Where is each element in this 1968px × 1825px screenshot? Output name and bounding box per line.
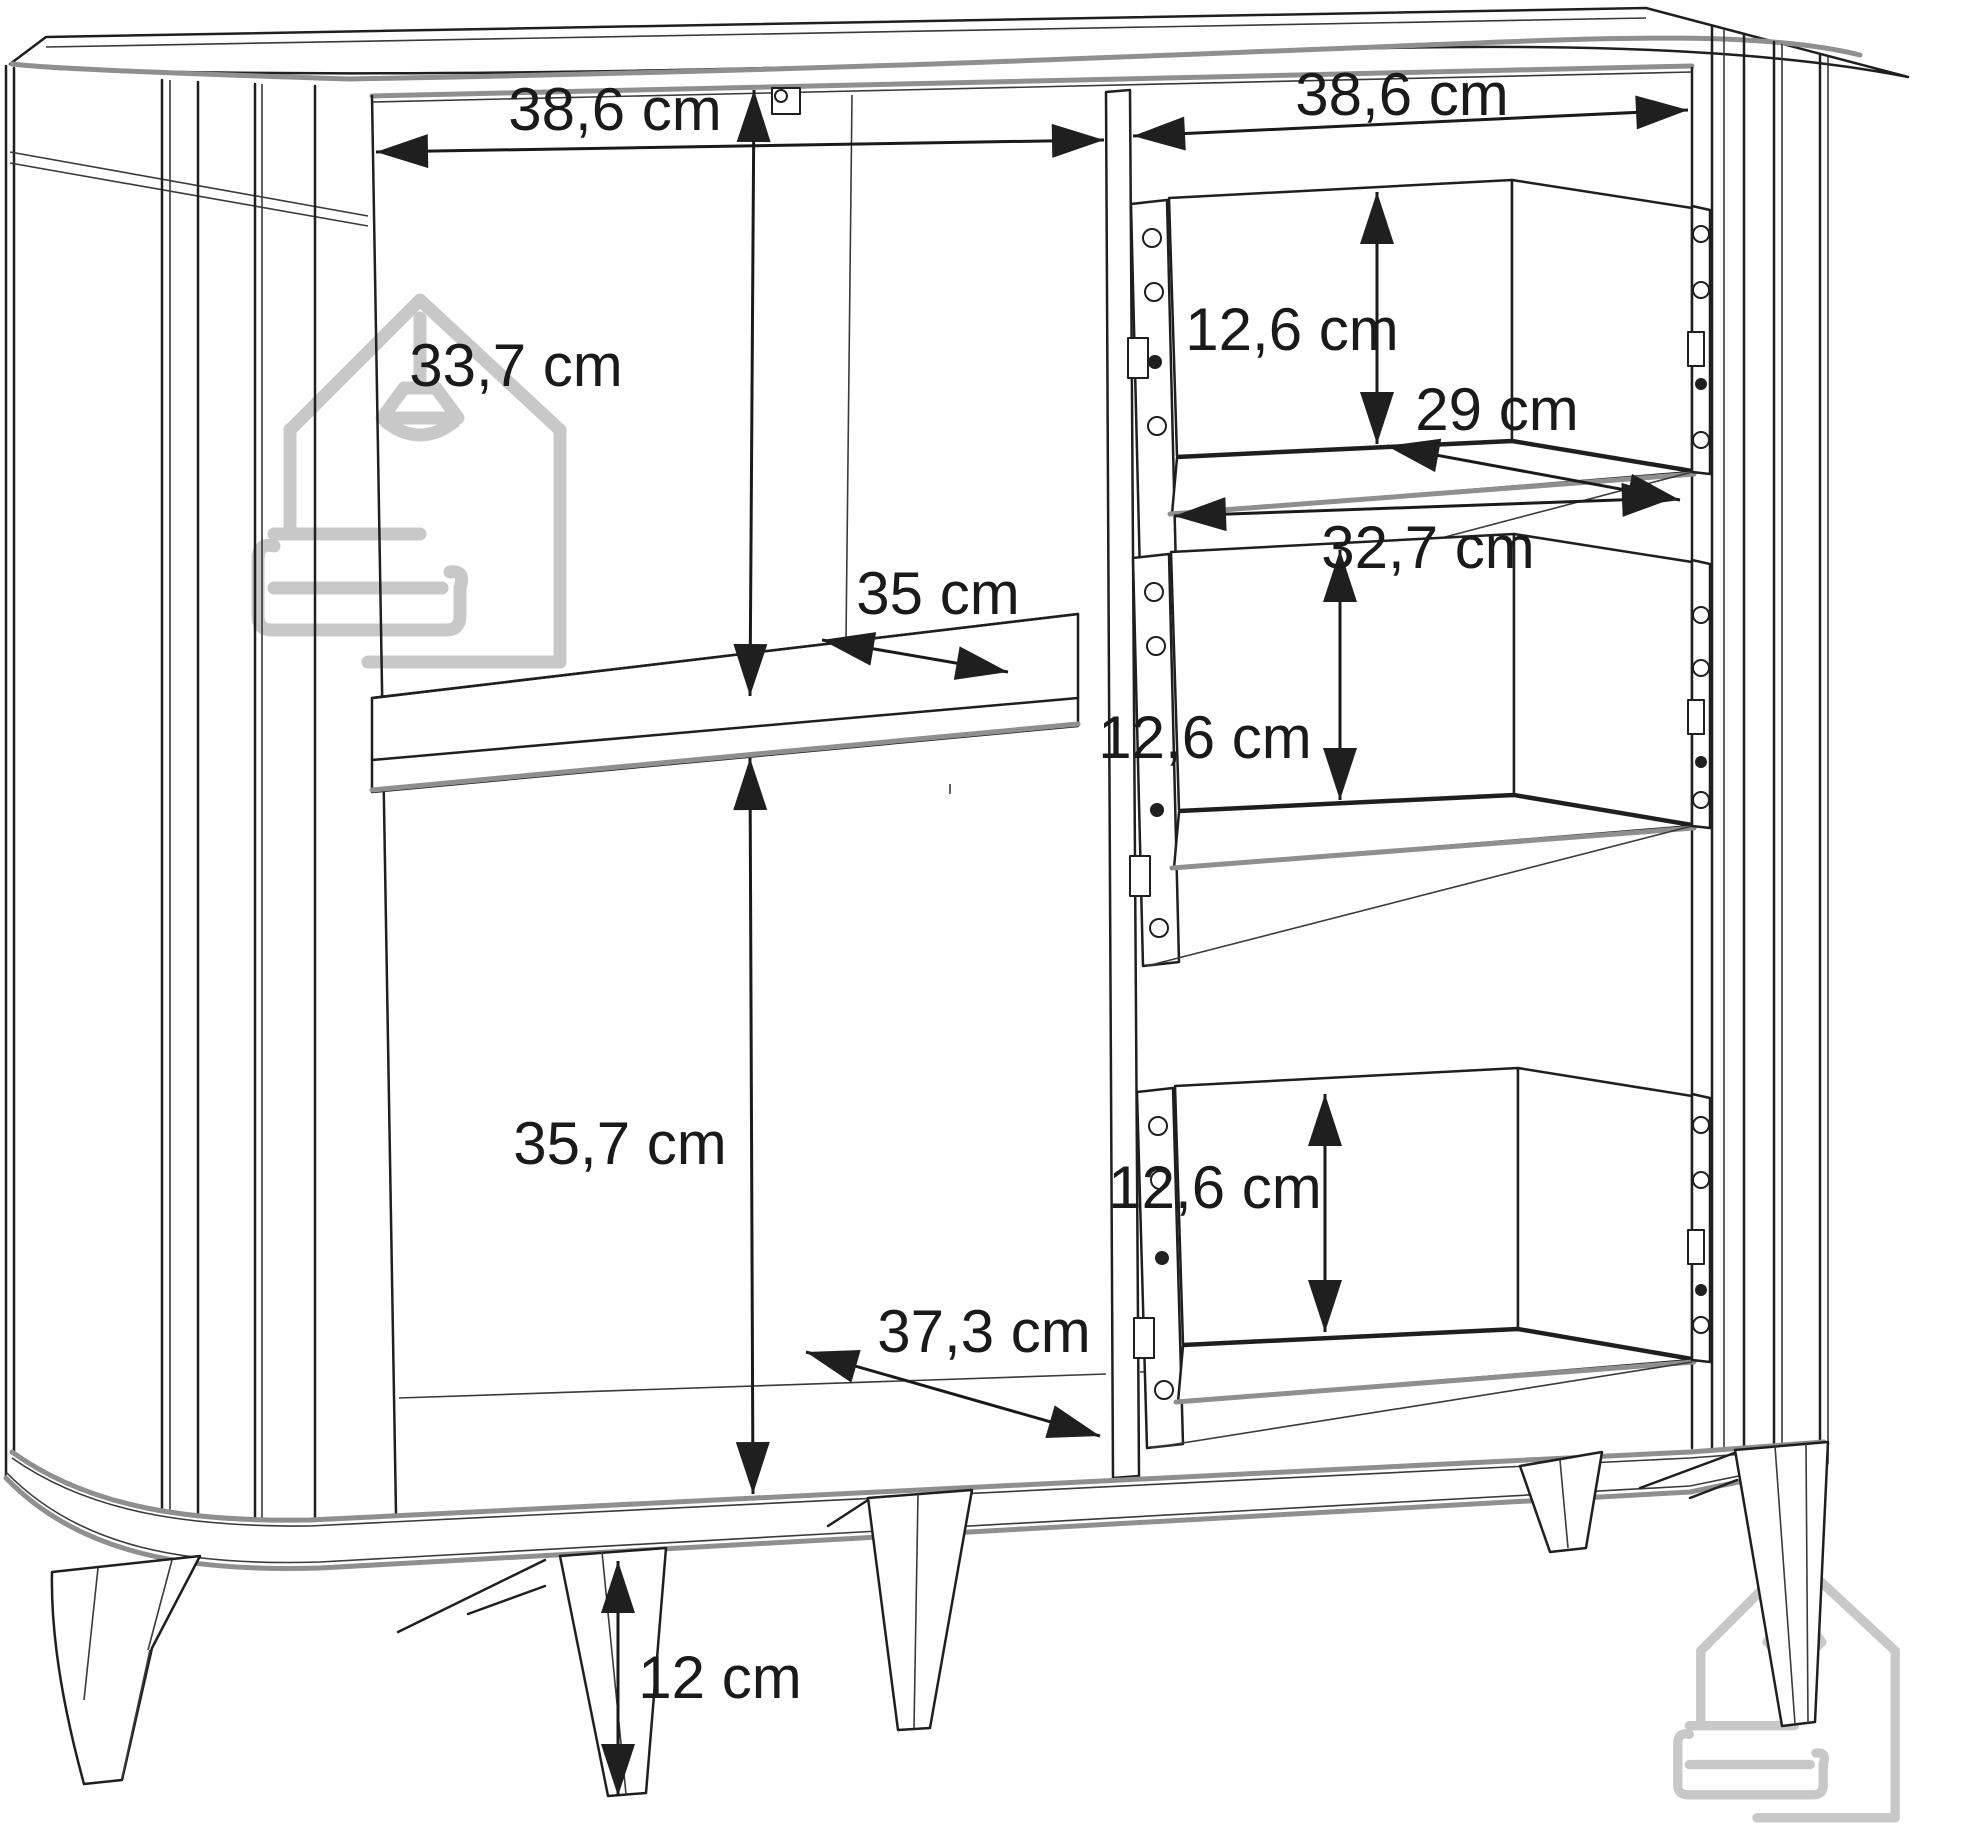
dimension-label-bottom-depth: 37,3 cm bbox=[877, 1298, 1090, 1365]
dimension-label-leg-height: 12 cm bbox=[638, 1644, 801, 1711]
dimension-label-right-opening-width: 38,6 cm bbox=[1295, 61, 1508, 128]
cabinet-top-panel bbox=[10, 8, 1908, 102]
dimension-label-drawer-bottom-height: 12,6 cm bbox=[1108, 1154, 1321, 1221]
drawer-bottom bbox=[1134, 1068, 1710, 1448]
arrowhead bbox=[736, 1442, 770, 1494]
shelf bbox=[372, 614, 1078, 808]
left-side-panel bbox=[6, 66, 396, 1520]
arrowhead bbox=[733, 758, 767, 810]
arrowhead bbox=[806, 1350, 861, 1383]
legs bbox=[52, 1442, 1828, 1796]
dimension-label-drawer-bottom-width: 32,7 cm bbox=[1321, 514, 1534, 581]
arrowhead bbox=[1133, 117, 1186, 151]
arrowhead bbox=[1045, 1405, 1100, 1438]
leg-back-right bbox=[1520, 1452, 1602, 1552]
dimension-label-lower-left-height: 35,7 cm bbox=[513, 1110, 726, 1177]
leg-front-left bbox=[52, 1556, 200, 1784]
arrowhead bbox=[1635, 95, 1688, 129]
dim-arrow-lower-left-height bbox=[750, 758, 753, 1494]
arrowhead bbox=[737, 90, 771, 142]
arrowhead bbox=[376, 134, 428, 168]
dimension-label-upper-left-height: 33,7 cm bbox=[409, 332, 622, 399]
technical-drawing-page: 38,6 cm 38,6 cm 33,7 cm 35 cm 35,7 cm 37… bbox=[0, 0, 1968, 1825]
cabinet-dimension-diagram: 38,6 cm 38,6 cm 33,7 cm 35 cm 35,7 cm 37… bbox=[0, 0, 1968, 1825]
dimension-label-drawer-middle-height: 12,6 cm bbox=[1098, 704, 1311, 771]
dimension-label-shelf-depth: 35 cm bbox=[856, 560, 1019, 627]
dim-arrow-upper-left-height bbox=[750, 90, 754, 696]
dimension-label-drawer-side-depth: 29 cm bbox=[1415, 376, 1578, 443]
dimension-label-left-opening-width: 38,6 cm bbox=[508, 76, 721, 143]
arrowhead bbox=[1052, 124, 1104, 158]
dimension-label-drawer-top-height: 12,6 cm bbox=[1185, 296, 1398, 363]
right-side-panel bbox=[1692, 26, 1828, 1487]
drawer-right-rail bbox=[1692, 560, 1710, 828]
